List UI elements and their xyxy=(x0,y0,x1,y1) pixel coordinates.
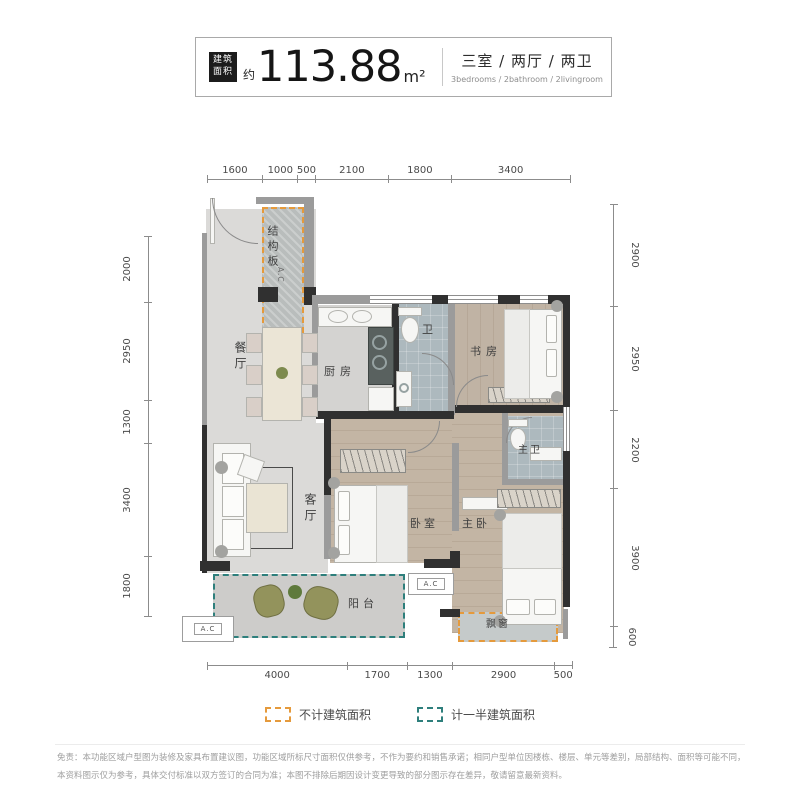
nightstand xyxy=(328,547,340,559)
nightstand xyxy=(551,300,563,312)
dining-label: 餐厅 xyxy=(232,341,249,373)
wall-segment xyxy=(202,233,207,425)
side-table xyxy=(215,545,228,558)
dimension-scale-left: 20002950130034001800 xyxy=(124,236,148,616)
wall-segment xyxy=(563,609,568,639)
dimension-segment: 500 xyxy=(554,665,572,690)
legend-not-counted-label: 不计建筑面积 xyxy=(299,706,371,723)
window xyxy=(563,407,570,451)
sink-basin xyxy=(352,310,372,323)
master-bath-label: 主卫 xyxy=(518,441,542,456)
orange-dashed-swatch xyxy=(265,707,291,722)
bedroom-label: 卧室 xyxy=(410,515,438,531)
master-bedroom-label: 主卧 xyxy=(462,515,490,531)
legend-item-half-counted: 计一半建筑面积 xyxy=(417,706,535,723)
dimension-segment: 3400 xyxy=(451,155,570,180)
dining-chair xyxy=(302,365,318,385)
wall-segment xyxy=(450,551,460,561)
wall-segment xyxy=(316,411,396,419)
bedroom-bed-duvet xyxy=(376,485,408,563)
area-tag-line1: 建筑 xyxy=(213,55,233,67)
layout-block: 三室 / 两厅 / 两卫 3bedrooms / 2bathroom / 2li… xyxy=(443,50,611,84)
dimension-segment: 1800 xyxy=(389,155,452,180)
nightstand xyxy=(494,509,506,521)
toilet-tank xyxy=(508,419,528,427)
dimension-segment: 3400 xyxy=(124,443,149,556)
legend-half-counted-label: 计一半建筑面积 xyxy=(451,706,535,723)
pillow xyxy=(546,349,557,377)
dimension-segment: 2100 xyxy=(315,155,388,180)
legend-item-not-counted: 不计建筑面积 xyxy=(265,706,371,723)
dining-chair xyxy=(246,397,262,417)
study-bed-duvet xyxy=(504,309,530,399)
dimension-segment: 1000 xyxy=(263,155,298,180)
area-block: 建筑 面积 约 113.88 m² xyxy=(196,46,442,89)
kitchen-label: 厨房 xyxy=(324,363,356,379)
area-tag-line2: 面积 xyxy=(213,67,233,79)
dimension-segment: 1600 xyxy=(207,155,263,180)
table-plant xyxy=(276,367,288,379)
sofa-cushion xyxy=(222,486,244,517)
wall-segment xyxy=(200,561,230,571)
dimension-segment: 2950 xyxy=(124,302,149,400)
dimension-segment: 1700 xyxy=(347,665,407,690)
bath-label: 卫 xyxy=(422,321,436,337)
master-bed-duvet xyxy=(502,513,562,569)
pillow xyxy=(338,491,350,521)
dimension-scale-top: 16001000500210018003400 xyxy=(207,155,570,179)
dimension-segment: 2950 xyxy=(613,307,640,411)
toilet-tank xyxy=(398,307,422,316)
dimension-segment: 600 xyxy=(613,627,640,648)
window xyxy=(448,295,498,304)
dimension-segment: 1800 xyxy=(124,556,149,616)
disclaimer-divider xyxy=(55,744,745,745)
dimension-segment: 2900 xyxy=(453,665,555,690)
vanity-basin xyxy=(399,383,409,393)
dimension-scale-bottom: 4000170013002900500 xyxy=(207,665,572,689)
wall-segment xyxy=(304,203,314,297)
kitchen-appliance xyxy=(368,387,394,411)
bay-window-label: 飘窗 xyxy=(486,615,510,630)
dimension-segment: 4000 xyxy=(207,665,347,690)
side-table xyxy=(215,461,228,474)
bedroom-wardrobe xyxy=(340,449,406,473)
pillow xyxy=(546,315,557,343)
floor-plan: 结构板 A.C 餐厅 厨房 卫 书房 主卫 客厅 卧室 主卧 阳台 飘窗 A.C… xyxy=(200,195,572,650)
dimension-segment: 500 xyxy=(298,155,315,180)
dimension-segment: 3900 xyxy=(613,489,640,627)
nightstand xyxy=(551,391,563,403)
pillow xyxy=(534,599,556,615)
master-wardrobe xyxy=(497,489,561,508)
layout-cn: 三室 / 两厅 / 两卫 xyxy=(443,50,611,71)
dimension-segment: 2200 xyxy=(613,411,640,489)
wall-segment xyxy=(202,425,207,573)
layout-en: 3bedrooms / 2bathroom / 2livingroom xyxy=(443,75,611,84)
dimension-segment: 1300 xyxy=(124,400,149,443)
teal-dashed-swatch xyxy=(417,707,443,722)
legend: 不计建筑面积 计一半建筑面积 xyxy=(0,706,800,723)
wall-segment xyxy=(563,451,570,607)
wall-segment xyxy=(312,295,370,304)
balcony-label: 阳台 xyxy=(348,595,378,611)
wall-segment xyxy=(452,443,459,531)
ac-unit-box: A.C xyxy=(408,573,454,595)
sink-basin xyxy=(328,310,348,323)
area-tag: 建筑 面积 xyxy=(209,52,237,81)
dimension-segment: 2000 xyxy=(124,236,149,302)
stove-burner xyxy=(372,355,387,370)
balcony-plant xyxy=(288,585,302,599)
area-unit: m² xyxy=(404,67,426,86)
living-label: 客厅 xyxy=(302,493,319,525)
area-value: 113.88 xyxy=(257,46,401,89)
pillow xyxy=(506,599,530,615)
stove-burner xyxy=(372,335,387,350)
wall-segment xyxy=(258,287,278,302)
window xyxy=(520,295,548,304)
wall-segment xyxy=(498,295,520,304)
ac-vertical-label: A.C xyxy=(276,267,285,283)
wall-segment xyxy=(432,295,448,304)
ac-unit-label: A.C xyxy=(417,578,446,590)
coffee-table xyxy=(246,483,288,533)
dimension-segment: 2900 xyxy=(613,204,640,307)
structure-board-label: 结构板 xyxy=(264,225,280,270)
dining-chair xyxy=(302,397,318,417)
ac-unit-box: A.C xyxy=(182,616,234,642)
header-panel: 建筑 面积 约 113.88 m² 三室 / 两厅 / 两卫 3bedrooms… xyxy=(195,37,612,97)
area-approx: 约 xyxy=(243,66,255,83)
study-label: 书房 xyxy=(470,343,502,359)
disclaimer-text: 免责：本功能区域户型图为装修及家具布置建议图，功能区域所标尺寸面积仅供参考，不作… xyxy=(57,750,749,786)
wall-segment xyxy=(563,299,570,407)
window xyxy=(370,295,432,304)
ac-unit-label: A.C xyxy=(194,623,223,635)
dining-chair xyxy=(302,333,318,353)
dimension-segment: 1300 xyxy=(407,665,453,690)
wall-segment xyxy=(440,609,460,617)
dimension-scale-right: 2900295022003900600 xyxy=(613,204,639,648)
nightstand xyxy=(328,477,340,489)
wall-segment xyxy=(448,297,455,415)
wall-segment xyxy=(396,411,454,419)
wall-segment xyxy=(502,479,564,485)
